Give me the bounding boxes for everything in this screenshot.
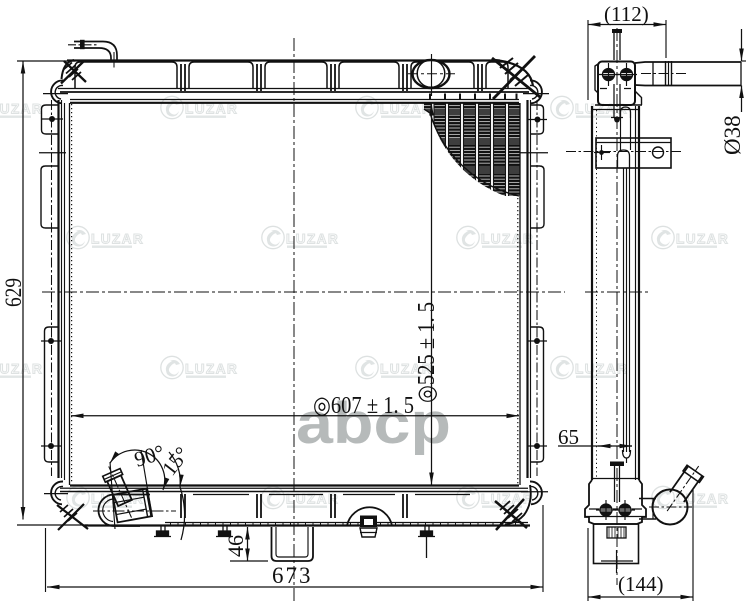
svg-text:673: 673 — [272, 563, 313, 588]
svg-text:◎525 ± 1. 5: ◎525 ± 1. 5 — [414, 302, 440, 403]
svg-text:65: 65 — [558, 425, 579, 449]
svg-text:◎607 ± 1. 5: ◎607 ± 1. 5 — [313, 393, 414, 419]
svg-text:(112): (112) — [604, 2, 649, 26]
svg-text:46: 46 — [223, 535, 248, 557]
svg-text:Ø38: Ø38 — [720, 115, 745, 155]
svg-text:629: 629 — [1, 278, 26, 307]
svg-text:(144): (144) — [618, 572, 664, 596]
